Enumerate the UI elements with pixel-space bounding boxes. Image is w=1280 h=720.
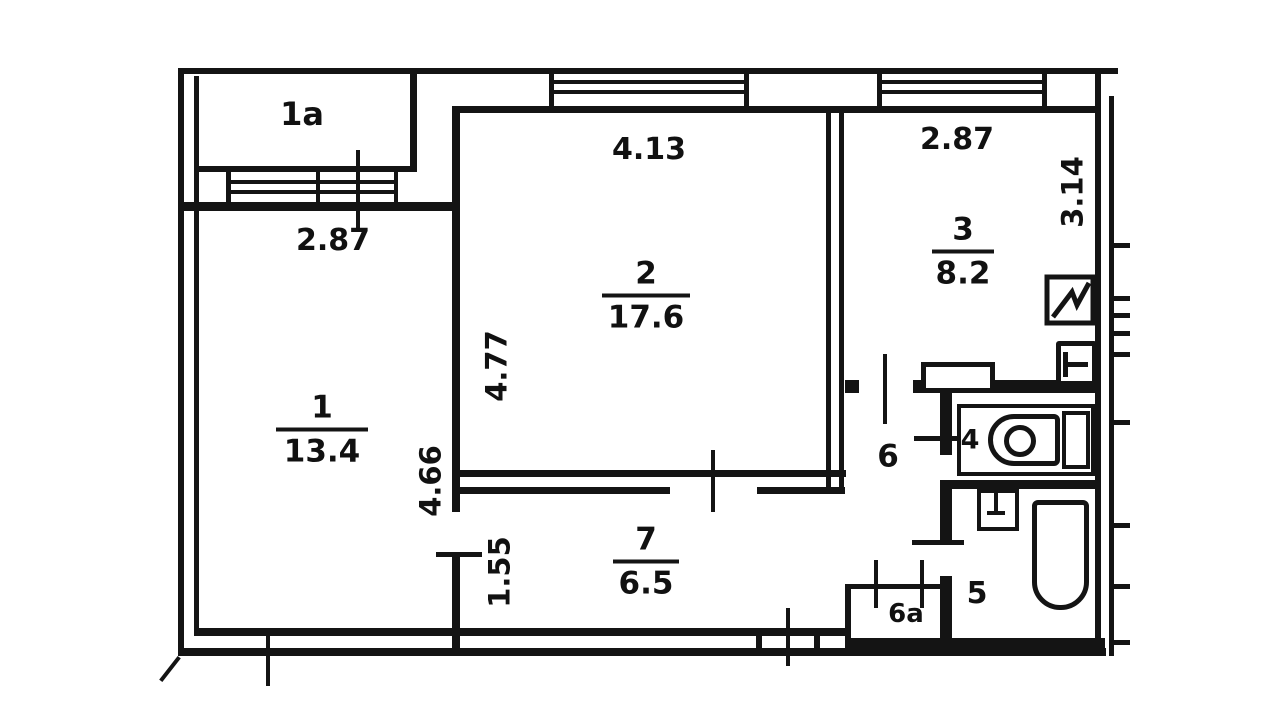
washbasin-tap-bar bbox=[987, 511, 1005, 515]
dim-text: 3.14 bbox=[1056, 156, 1090, 228]
balcony-window-cap bbox=[394, 172, 398, 204]
dimension-room1-depth: 4.66 bbox=[417, 445, 446, 517]
wall-room7-top bbox=[757, 487, 845, 494]
stove-mark-horizontal bbox=[1066, 362, 1088, 367]
kitchen-sink-icon bbox=[1044, 274, 1096, 326]
dimension-room2-width: 4.13 bbox=[612, 135, 686, 165]
dimension-room2-depth: 4.77 bbox=[483, 330, 512, 402]
duct-bottom bbox=[921, 388, 995, 393]
room-2-number: 2 bbox=[602, 259, 690, 298]
window-line bbox=[881, 90, 1043, 94]
room-2-area: 17.6 bbox=[602, 298, 690, 334]
wall-bottom-inner bbox=[194, 628, 846, 636]
dimension-room3-depth: 3.14 bbox=[1059, 156, 1088, 228]
dim-text: 4.13 bbox=[612, 132, 686, 167]
balcony-right-wall bbox=[410, 70, 417, 170]
room-label-3: 3 8.2 bbox=[932, 215, 994, 290]
dim-text: 1.55 bbox=[483, 536, 517, 608]
door-tick-room1 bbox=[436, 552, 482, 557]
balcony-window-cap bbox=[316, 172, 320, 204]
room-3-number: 3 bbox=[932, 215, 994, 254]
dim-text: 4.77 bbox=[480, 330, 514, 402]
entry-door-jamb bbox=[756, 630, 762, 650]
bathtub-icon bbox=[1032, 500, 1089, 610]
room-label-5: 5 bbox=[967, 579, 988, 609]
washbasin-tap bbox=[994, 493, 998, 513]
room-4-number: 4 bbox=[961, 425, 980, 456]
window-line bbox=[881, 80, 1043, 84]
dim-text: 4.66 bbox=[414, 445, 448, 517]
wall-room7-top bbox=[452, 487, 670, 494]
wall-right-inner-line bbox=[1109, 96, 1114, 656]
balcony-window-cap bbox=[226, 170, 231, 204]
dimension-tick bbox=[356, 150, 360, 232]
wall-hatch-tick bbox=[1114, 296, 1130, 301]
floor-plan: 1a 1 13.4 2 17.6 3 8.2 7 6.5 6 4 5 6a 2.… bbox=[0, 0, 1280, 720]
room-1-area: 13.4 bbox=[276, 432, 368, 468]
room-label-2: 2 17.6 bbox=[602, 259, 690, 334]
wall-hatch-tick bbox=[1114, 331, 1130, 336]
dim-text: 2.87 bbox=[296, 223, 370, 258]
wall-hatch-tick bbox=[1114, 584, 1130, 589]
washbasin-icon bbox=[977, 489, 1019, 531]
wall-wc-bath bbox=[952, 480, 1098, 489]
balcony-window-line bbox=[230, 190, 396, 194]
room-label-6: 6 bbox=[877, 442, 899, 473]
room-label-4: 4 bbox=[961, 427, 980, 454]
wall-left-inner-line bbox=[194, 76, 199, 636]
wall-kitchen-bottom bbox=[845, 380, 859, 393]
window-line bbox=[553, 90, 745, 94]
toilet-bowl-circle bbox=[1004, 425, 1036, 457]
wall-room1-right bbox=[452, 106, 460, 512]
wall-hatch-tick bbox=[1114, 313, 1130, 318]
duct-top bbox=[921, 362, 995, 367]
wall-hatch-tick bbox=[1114, 352, 1130, 357]
closet-top-wall bbox=[845, 584, 945, 589]
window-line bbox=[553, 80, 745, 84]
dimension-tick bbox=[874, 560, 878, 608]
wall-room2-room3 bbox=[839, 112, 844, 493]
wall-hatch-tick bbox=[1114, 523, 1130, 528]
wall-room2-room3 bbox=[826, 112, 831, 493]
wall-outer-left bbox=[178, 68, 184, 656]
wall-bottom-inner-right bbox=[846, 638, 1105, 650]
door-tick-room2 bbox=[711, 450, 715, 512]
room-6a-number: 6a bbox=[888, 599, 924, 629]
room-3-area: 8.2 bbox=[932, 254, 994, 290]
room-label-6a: 6a bbox=[888, 601, 924, 627]
room1-top-wall bbox=[178, 202, 456, 211]
wall-hall-right bbox=[940, 393, 952, 455]
entry-door-tick bbox=[786, 608, 790, 666]
dimension-tick bbox=[266, 630, 270, 686]
entry-door-jamb bbox=[814, 630, 820, 650]
wall-room2-bottom bbox=[452, 470, 846, 477]
dimension-room1-window: 2.87 bbox=[296, 226, 370, 256]
room-1a-number: 1a bbox=[280, 95, 324, 133]
room-5-number: 5 bbox=[967, 576, 988, 611]
dim-text: 2.87 bbox=[920, 122, 994, 157]
room-7-number: 7 bbox=[613, 525, 679, 564]
wall-hall-right bbox=[940, 480, 952, 544]
room-7-area: 6.5 bbox=[613, 564, 679, 600]
toilet-cistern bbox=[1062, 411, 1090, 469]
room-label-1: 1 13.4 bbox=[276, 393, 368, 468]
door-tick-kitchen bbox=[883, 354, 887, 424]
dimension-room7-width: 1.55 bbox=[486, 536, 515, 608]
wall-outer-top bbox=[178, 68, 1118, 74]
corner-tick bbox=[159, 656, 181, 682]
dimension-room3-width: 2.87 bbox=[920, 125, 994, 155]
wall-hatch-tick bbox=[1114, 243, 1130, 248]
room-6-number: 6 bbox=[877, 439, 899, 475]
door-tick-bath bbox=[912, 540, 964, 545]
room-label-1a: 1a bbox=[280, 98, 324, 130]
wall-hatch-tick bbox=[1114, 640, 1130, 645]
room-label-7: 7 6.5 bbox=[613, 525, 679, 600]
balcony-window-line bbox=[230, 180, 396, 184]
room-1-number: 1 bbox=[276, 393, 368, 432]
wall-hatch-tick bbox=[1114, 420, 1130, 425]
